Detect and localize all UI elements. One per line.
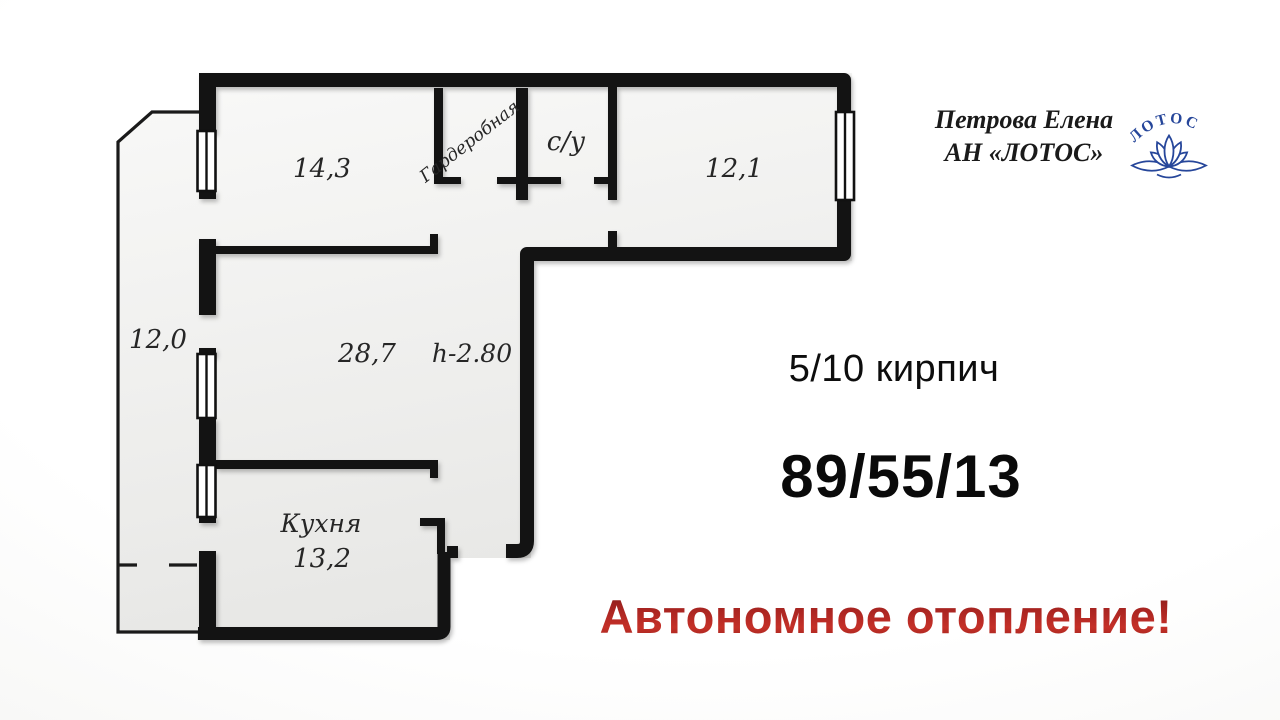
room-label-12-1: 12,1 (705, 154, 763, 184)
agent-text: Петрова Елена АН «ЛОТОС» (922, 103, 1126, 169)
wall-segment (199, 418, 216, 466)
door-jamb (608, 231, 617, 248)
room-label-14-3: 14,3 (293, 154, 351, 184)
agency-name: АН «ЛОТОС» (922, 136, 1126, 169)
partition-wall (216, 460, 438, 469)
window-symbol (836, 112, 854, 200)
agent-block: Петрова Елена АН «ЛОТОС» ЛОТОС (922, 103, 1212, 195)
wall-segment (420, 518, 442, 526)
partition-wall (216, 246, 438, 254)
door-jamb (430, 460, 438, 478)
area-numbers: 89/55/13 (741, 442, 1061, 511)
wall-segment (447, 546, 458, 558)
room-label-living: 28,7 (337, 339, 396, 369)
window-symbol (198, 131, 216, 191)
room-label-kitchen-area: 13,2 (293, 544, 351, 574)
wall-segment (199, 239, 216, 315)
door-jamb (594, 177, 608, 184)
wall-segment (199, 551, 216, 633)
agent-name: Петрова Елена (922, 103, 1126, 136)
door-jamb (443, 177, 461, 184)
window-symbol (198, 354, 216, 418)
door-jamb (528, 177, 561, 184)
window-symbol (198, 465, 216, 517)
room-label-loggia: 12,0 (129, 325, 187, 355)
flyer-canvas: 14,3 Гардеробная с/у 12,1 12,0 28,7 h-2.… (0, 0, 1280, 720)
ceiling-height-label: h-2.80 (432, 339, 512, 368)
room-label-kitchen: Кухня (280, 509, 362, 538)
floor-info: 5/10 кирпич (744, 348, 1044, 391)
lotus-flower-icon (1132, 136, 1206, 178)
heating-highlight: Автономное отопление! (540, 589, 1232, 644)
lotus-logo: ЛОТОС (1130, 103, 1208, 191)
partition-wall (430, 234, 438, 248)
room-label-bathroom: с/у (547, 127, 585, 157)
door-jamb (497, 177, 516, 184)
partition-wall (608, 87, 617, 200)
wall-segment (199, 73, 216, 133)
partition-wall (516, 88, 528, 200)
